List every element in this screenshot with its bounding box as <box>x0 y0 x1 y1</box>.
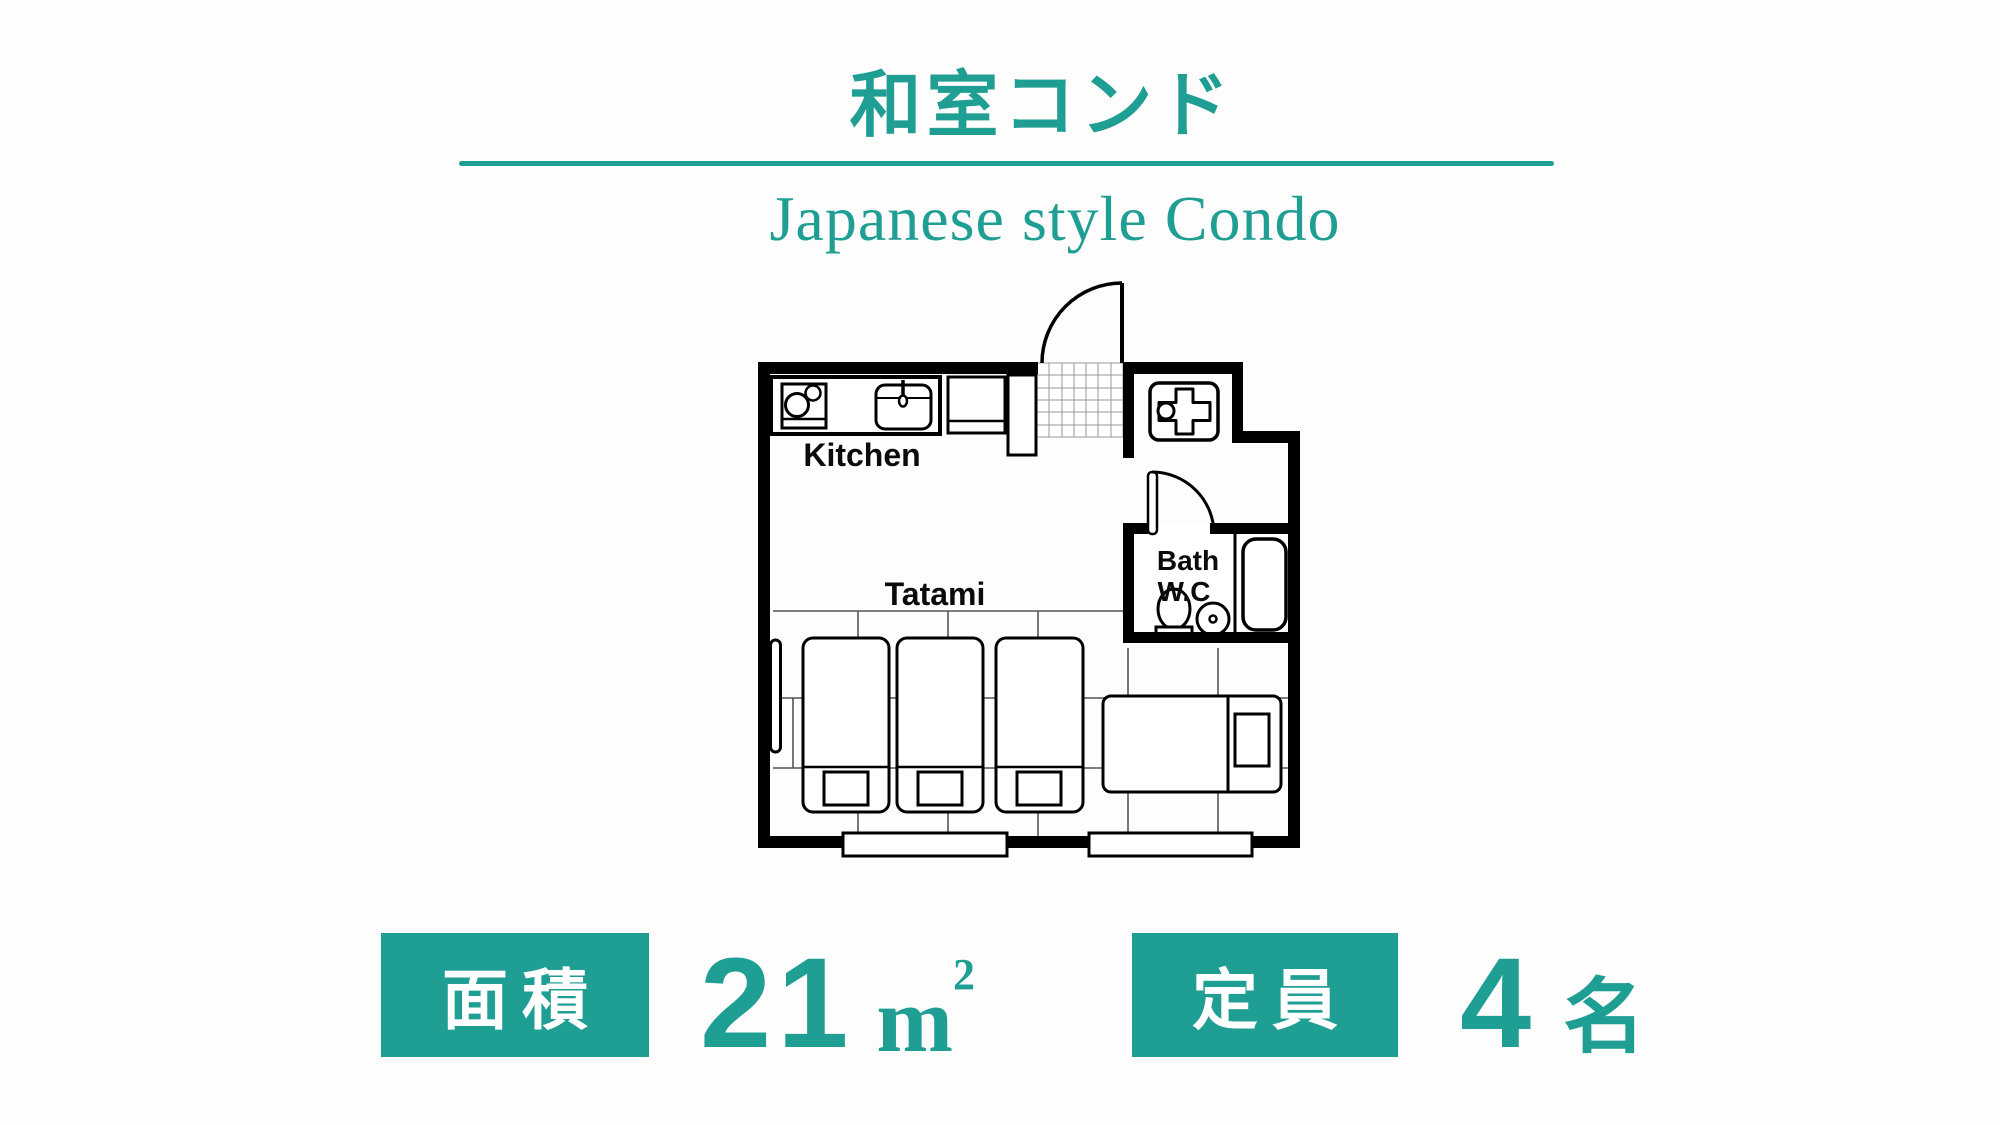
area-badge-label: 面積 <box>428 947 602 1043</box>
floorplan: Kitchen Tatami Bath W.C <box>740 270 1320 882</box>
page-root: { "header": { "title": "和室コンド", "subtitl… <box>0 0 2000 1125</box>
area-value-unit: m2 <box>876 975 975 1057</box>
area-value-number: 21 <box>700 952 854 1057</box>
window-bottom-left <box>843 833 1007 856</box>
kitchen-label: Kitchen <box>803 437 920 473</box>
wc-label: W.C <box>1158 576 1211 607</box>
area-badge: 面積 <box>381 933 649 1057</box>
pillow-2 <box>918 772 962 805</box>
pillow-1 <box>824 772 868 805</box>
page-title: 和室コンド <box>849 46 1234 151</box>
capacity-badge-label: 定員 <box>1178 947 1352 1043</box>
refrigerator <box>1008 375 1036 455</box>
entrance-door <box>1042 283 1122 363</box>
capacity-value-unit: 名 <box>1563 979 1645 1057</box>
bathtub <box>1243 539 1286 630</box>
page-subtitle: Japanese style Condo <box>770 182 1341 256</box>
futon-beds <box>803 638 1083 812</box>
window-bottom-right <box>1089 833 1252 856</box>
title-divider-line <box>459 161 1554 166</box>
genkan-tiles <box>1037 363 1123 437</box>
capacity-badge: 定員 <box>1132 933 1398 1057</box>
cabinet <box>948 377 1005 433</box>
stove <box>782 384 826 428</box>
sink <box>876 380 931 429</box>
bed-horizontal <box>1103 696 1281 792</box>
area-value: 21 m2 <box>700 937 975 1057</box>
capacity-value-number: 4 <box>1460 952 1537 1057</box>
washing-machine <box>1150 383 1218 440</box>
bath-label: Bath <box>1157 545 1219 576</box>
window-left <box>771 640 781 752</box>
capacity-value: 4 名 <box>1460 937 1645 1057</box>
tatami-label: Tatami <box>885 576 986 612</box>
pillow-3 <box>1017 772 1061 805</box>
bed-pillow <box>1235 714 1269 766</box>
